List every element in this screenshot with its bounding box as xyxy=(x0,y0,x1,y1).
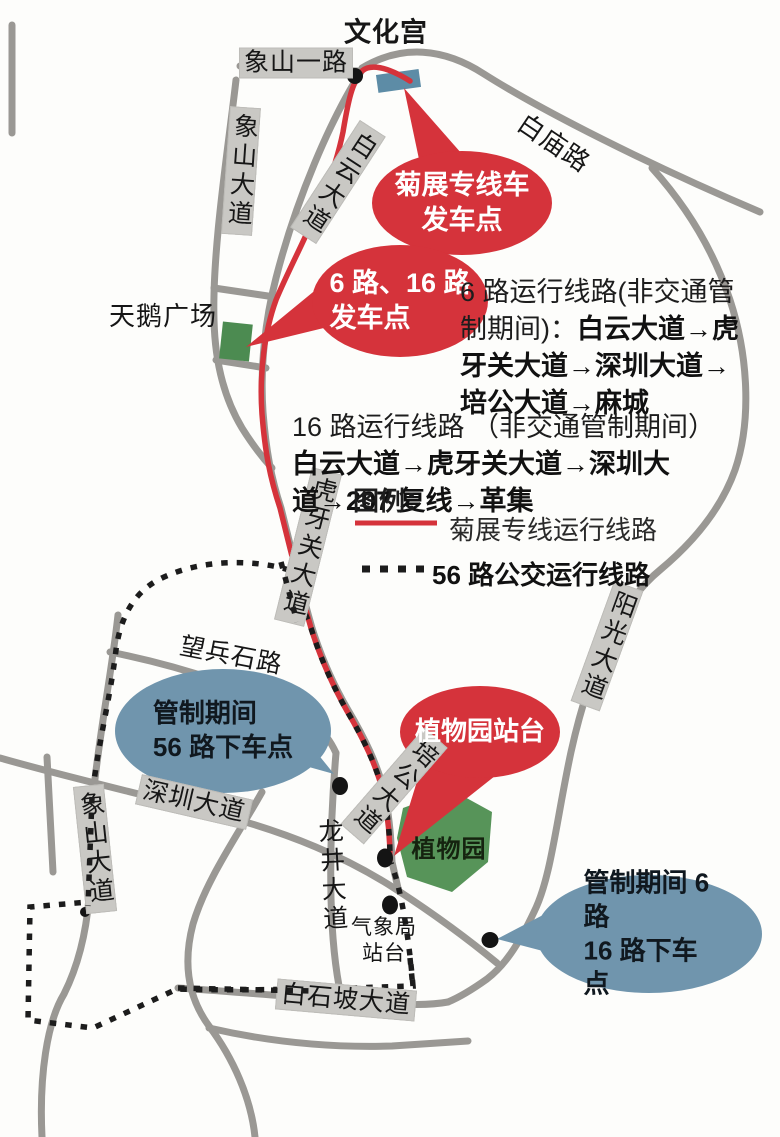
station-dot-6-16-dropoff xyxy=(482,932,499,948)
place-label-qixiangju-zhantai: 气象局 站台 xyxy=(351,915,417,968)
road-cross-street-2 xyxy=(216,360,266,368)
place-label-wenhuagong: 文化宫 xyxy=(344,18,428,47)
legend-label-special-line: 菊展专线运行线路 xyxy=(449,510,657,547)
road-bottom-stub xyxy=(209,1028,468,1046)
callout-text-dropoff-56: 管制期间 56 路下车点 xyxy=(153,697,293,765)
note-route16-normal: 16 路运行线路 （非交通管制期间） xyxy=(292,412,715,442)
place-label-zhiwuyuan: 植物园 xyxy=(412,837,487,863)
road-label-xiangshan-yilu: 象山一路 xyxy=(239,48,353,79)
station-dot-bus56-dropoff xyxy=(332,777,348,795)
callout-text-zhiwuyuan-stop: 植物园站台 xyxy=(415,715,545,749)
legend-label-bus56-line: 56 路公交运行线路 xyxy=(432,555,650,592)
callout-text-dropoff-6-16: 管制期间 6 路 16 路下车点 xyxy=(584,866,715,1001)
bus-route-map: 文化宫 天鹅广场 植物园 气象局 站台 象山一路 象山大道 白云大道 虎牙关大道… xyxy=(0,0,780,1137)
tiane-square-area xyxy=(219,322,253,362)
note-route16-bold: 白云大道→虎牙关大道→深圳大 道→207 复线→革集 xyxy=(292,449,670,516)
station-dot-zhiwuyuan xyxy=(377,849,393,868)
station-dot-qixiangju xyxy=(382,896,398,915)
callout-text-departure-6-16: 6 路、16 路 发车点 xyxy=(329,266,470,336)
road-label-longjing-dadao: 龙井大道 xyxy=(312,811,350,940)
road-cross-street-1 xyxy=(214,288,268,296)
callout-text-departure-special: 菊展专线车 发车点 xyxy=(395,168,530,238)
road-southwest-hook xyxy=(188,792,262,1137)
legend-title: 图例： xyxy=(353,481,431,518)
place-label-tiane-guangchang: 天鹅广场 xyxy=(109,302,217,330)
